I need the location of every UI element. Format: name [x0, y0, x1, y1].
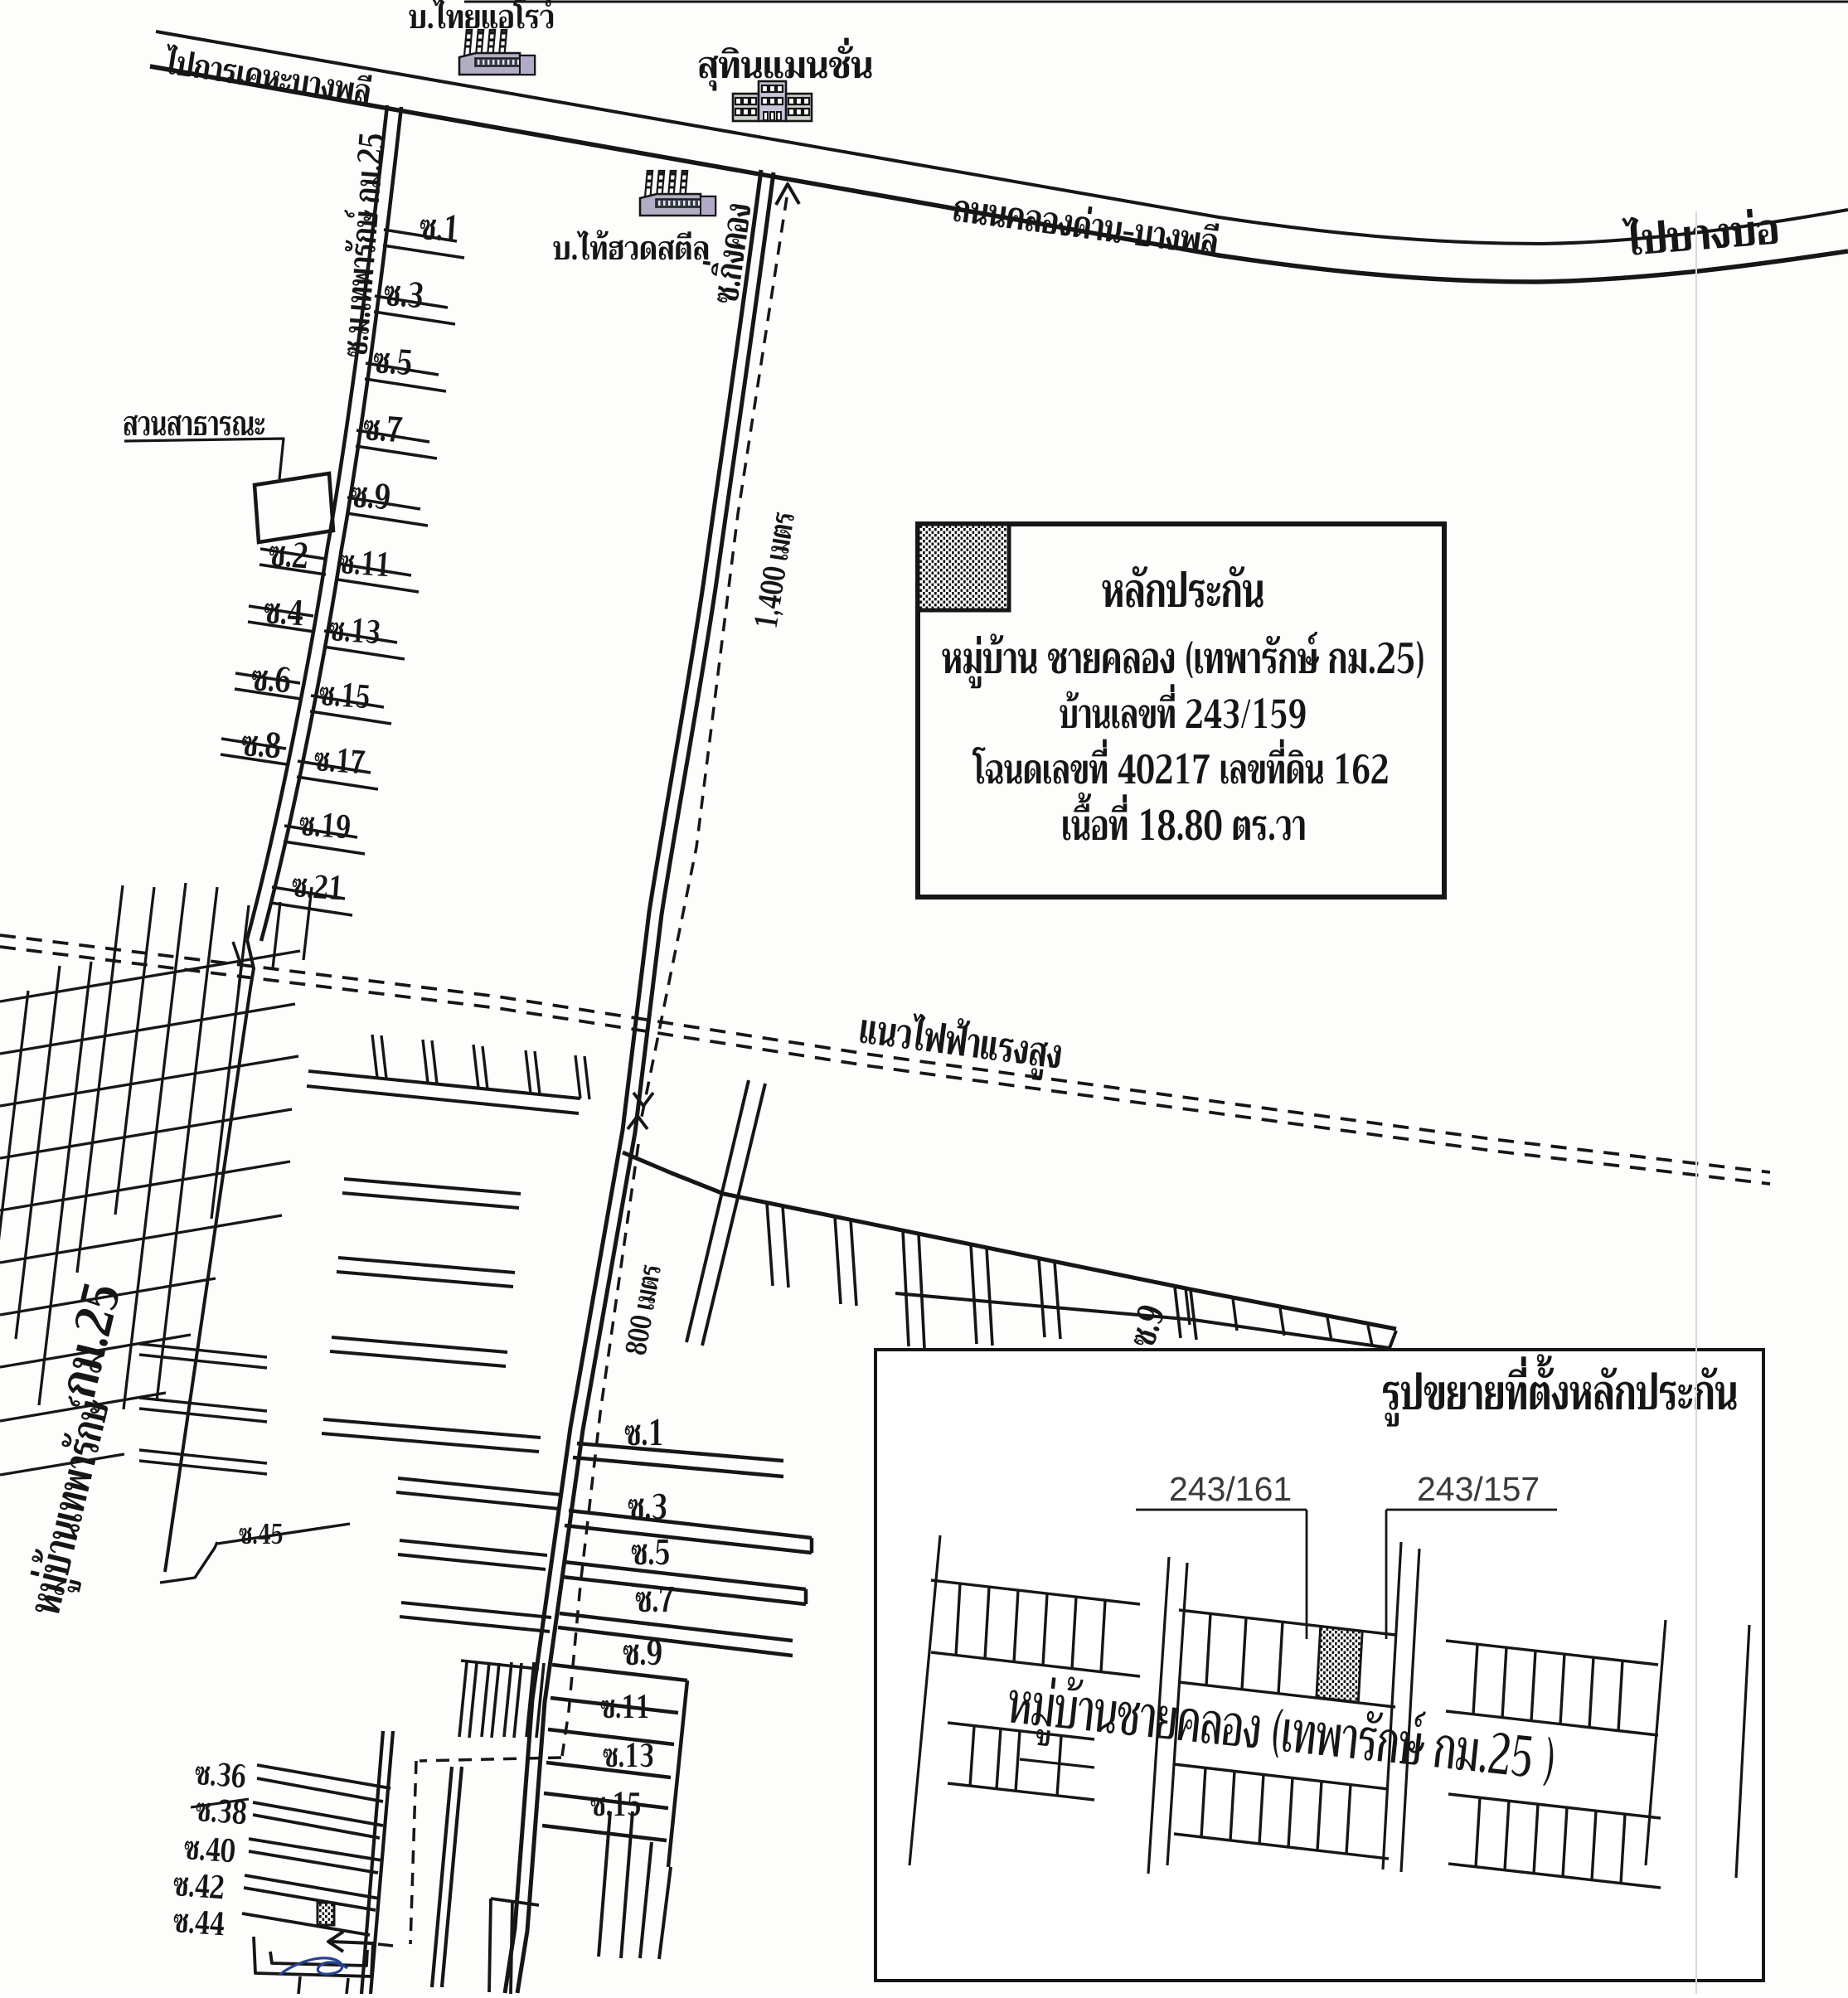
svg-text:243/157: 243/157 — [1417, 1470, 1540, 1508]
svg-text:243/161: 243/161 — [1169, 1470, 1292, 1508]
